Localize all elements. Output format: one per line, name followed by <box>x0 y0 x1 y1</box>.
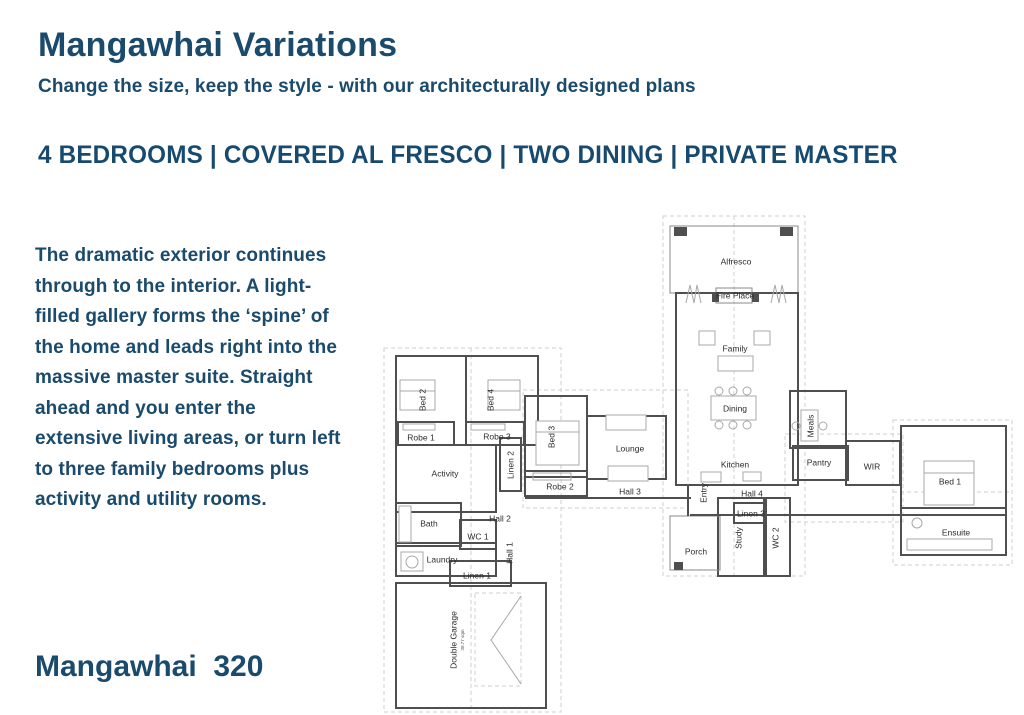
label-wc2: WC 2 <box>770 527 780 549</box>
bathtub <box>399 506 411 542</box>
label-lounge: Lounge <box>616 443 645 453</box>
label-laundry: Laundry <box>427 554 458 564</box>
label-kitchen: Kitchen <box>721 459 750 469</box>
ensuite-vanity <box>907 539 992 550</box>
label-bed3: Bed 3 <box>546 426 556 448</box>
label-robe2: Robe 2 <box>546 481 574 491</box>
label-meals: Meals <box>805 415 815 438</box>
label-bed1: Bed 1 <box>939 476 961 486</box>
label-family: Family <box>722 343 748 353</box>
lounge-sofa-top <box>606 415 646 430</box>
family-armchair-right <box>754 331 770 345</box>
label-wir: WIR <box>864 461 881 471</box>
label-pantry: Pantry <box>807 457 832 467</box>
label-linen3: Linen 3 <box>737 508 765 518</box>
family-sofa <box>718 356 753 371</box>
kitchen-island <box>701 472 721 482</box>
label-hall1: Hall 1 <box>504 542 514 564</box>
label-hall3: Hall 3 <box>619 486 641 496</box>
porch-post <box>674 562 683 570</box>
label-entry: Entry <box>698 482 708 503</box>
label-dining: Dining <box>723 403 747 413</box>
page-subtitle: Change the size, keep the style - with o… <box>38 76 696 98</box>
room-porch <box>670 516 720 570</box>
label-alfresco: Alfresco <box>721 256 752 266</box>
dining-chair <box>715 421 723 429</box>
label-porch: Porch <box>685 546 707 556</box>
robe3-rail <box>471 424 505 430</box>
label-fireplace: Fire Place <box>716 290 755 300</box>
floor-plan: AlfrescoFire PlaceFamilyDiningMealsKitch… <box>383 208 1015 713</box>
ensuite-toilet <box>912 518 922 528</box>
alfresco-post-right <box>780 227 793 236</box>
label-robe3: Robe 3 <box>483 431 511 441</box>
page-title: Mangawhai Variations <box>38 26 397 65</box>
lounge-sofa-bottom <box>608 466 648 481</box>
dining-chair <box>715 387 723 395</box>
label-bath: Bath <box>420 518 438 528</box>
family-armchair-left <box>699 331 715 345</box>
label-linen2: Linen 2 <box>505 451 515 479</box>
bed3-bed <box>536 421 579 465</box>
meals-chair <box>819 422 827 430</box>
description-text: The dramatic exterior continues through … <box>35 241 347 516</box>
label-garage: Double Garage <box>448 611 458 669</box>
alfresco-post-left <box>674 227 687 236</box>
dining-chair <box>729 387 737 395</box>
label-hall2: Hall 2 <box>489 513 511 523</box>
label-hall4: Hall 4 <box>741 488 763 498</box>
label-study: Study <box>733 526 743 548</box>
dining-chair <box>729 421 737 429</box>
label-bed4: Bed 4 <box>485 389 495 411</box>
label-bed2: Bed 2 <box>417 389 427 411</box>
label-ensuite: Ensuite <box>942 527 971 537</box>
dining-chair <box>743 387 751 395</box>
dining-chair <box>743 421 751 429</box>
label-linen1: Linen 1 <box>463 570 491 580</box>
robe1-rail <box>403 424 435 430</box>
label-garage-area: 38.77 sqm <box>460 629 465 650</box>
kitchen-appliance <box>743 472 761 481</box>
label-robe1: Robe 1 <box>407 432 435 442</box>
model-name: Mangawhai 320 <box>35 650 263 684</box>
room-activity <box>396 445 496 512</box>
label-activity: Activity <box>432 468 460 478</box>
label-wc1: WC 1 <box>467 531 489 541</box>
garage-door-chevron <box>491 596 521 684</box>
brochure-page: Mangawhai Variations Change the size, ke… <box>0 0 1024 715</box>
features-line: 4 BEDROOMS | COVERED AL FRESCO | TWO DIN… <box>38 141 898 170</box>
floor-plan-svg: AlfrescoFire PlaceFamilyDiningMealsKitch… <box>383 208 1015 713</box>
